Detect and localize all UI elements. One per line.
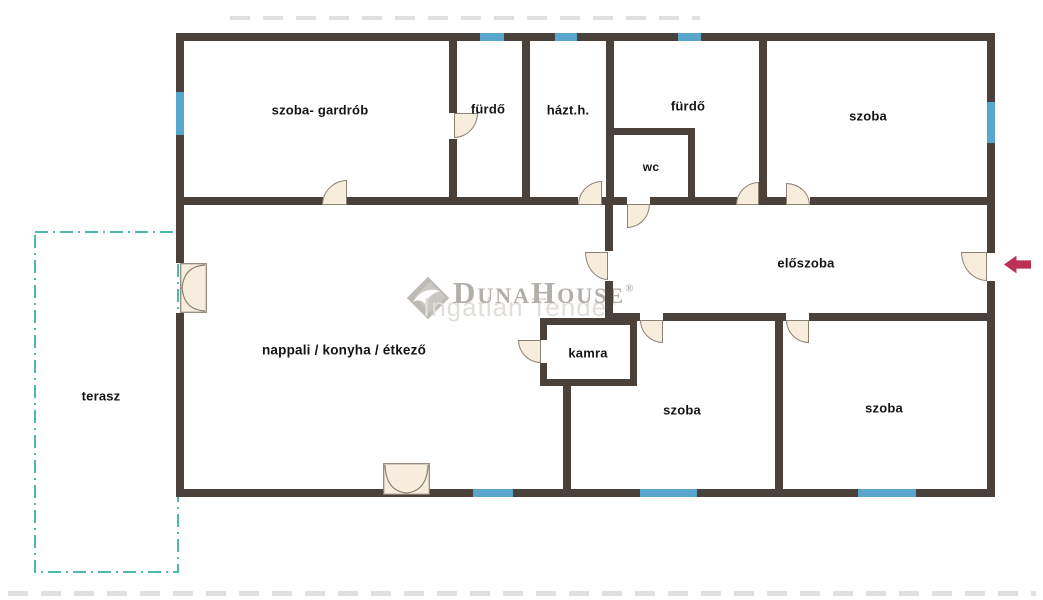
wall-segment bbox=[563, 386, 571, 489]
door-swing bbox=[640, 320, 663, 343]
wall-segment bbox=[176, 33, 995, 41]
room-label-nappali-konyha-etkezo-7: nappali / konyha / étkező bbox=[262, 343, 426, 358]
wall-segment bbox=[605, 205, 613, 251]
french-door bbox=[180, 263, 207, 313]
room-label-eloszoba-6: előszoba bbox=[777, 256, 834, 271]
wall-segment bbox=[775, 321, 783, 489]
room-label-szoba-5: szoba bbox=[849, 109, 887, 124]
watermark-artifact-stripe bbox=[230, 16, 700, 20]
watermark: Ingatlan Tender DunaHouse® bbox=[403, 271, 683, 323]
room-label-furdo-1: fürdő bbox=[471, 102, 505, 117]
wall-segment bbox=[630, 325, 637, 379]
wall-segment bbox=[449, 41, 457, 113]
wall-segment bbox=[540, 318, 637, 325]
wall-segment bbox=[760, 197, 786, 205]
wall-segment bbox=[449, 139, 457, 205]
room-label-szoba-10: szoba bbox=[865, 401, 903, 416]
wall-segment bbox=[176, 33, 184, 263]
french-door bbox=[383, 463, 430, 495]
wall-segment bbox=[602, 197, 627, 205]
window-marker bbox=[555, 33, 577, 41]
wall-segment bbox=[522, 41, 530, 205]
wall-segment bbox=[809, 313, 995, 321]
wall-segment bbox=[540, 379, 637, 386]
wall-segment bbox=[176, 313, 184, 497]
wall-segment bbox=[609, 128, 695, 135]
wall-segment bbox=[347, 197, 578, 205]
wall-segment bbox=[176, 197, 323, 205]
wall-segment bbox=[540, 363, 547, 379]
door-swing bbox=[585, 252, 608, 280]
door-swing bbox=[961, 252, 987, 281]
entry-arrow-icon bbox=[1004, 255, 1031, 274]
wall-segment bbox=[663, 313, 786, 321]
door-swing bbox=[322, 180, 347, 205]
wall-segment bbox=[606, 41, 614, 205]
wall-segment bbox=[987, 33, 995, 253]
wall-segment bbox=[759, 41, 767, 205]
room-label-kamra-8: kamra bbox=[568, 346, 607, 361]
registered-mark: ® bbox=[625, 283, 633, 295]
room-label-hazt-h-2: házt.h. bbox=[547, 103, 590, 118]
wall-segment bbox=[810, 197, 995, 205]
dunahouse-logo-icon bbox=[403, 273, 453, 323]
door-swing bbox=[786, 320, 809, 343]
watermark-artifact-stripe bbox=[8, 591, 1036, 596]
window-marker bbox=[858, 489, 916, 497]
door-swing bbox=[786, 183, 810, 205]
wall-segment bbox=[540, 325, 547, 340]
door-swing bbox=[454, 113, 478, 138]
window-marker bbox=[678, 33, 701, 41]
room-label-szoba-gardrob-0: szoba- gardrób bbox=[272, 103, 369, 118]
window-marker bbox=[640, 489, 697, 497]
room-label-szoba-9: szoba bbox=[663, 403, 701, 418]
wall-segment bbox=[688, 135, 695, 205]
room-label-wc-4: wc bbox=[643, 160, 659, 174]
door-swing bbox=[578, 181, 602, 205]
window-marker bbox=[987, 102, 995, 143]
wall-segment bbox=[650, 197, 737, 205]
window-marker bbox=[176, 92, 184, 135]
door-swing bbox=[736, 182, 759, 205]
floor-plan: Ingatlan Tender DunaHouse® szoba- gardró… bbox=[0, 0, 1043, 600]
window-marker bbox=[480, 33, 504, 41]
room-label-furdo-3: fürdő bbox=[671, 99, 705, 114]
room-label-terasz-11: terasz bbox=[82, 389, 121, 404]
door-swing bbox=[627, 204, 650, 228]
window-marker bbox=[473, 489, 513, 497]
door-swing bbox=[518, 340, 541, 363]
